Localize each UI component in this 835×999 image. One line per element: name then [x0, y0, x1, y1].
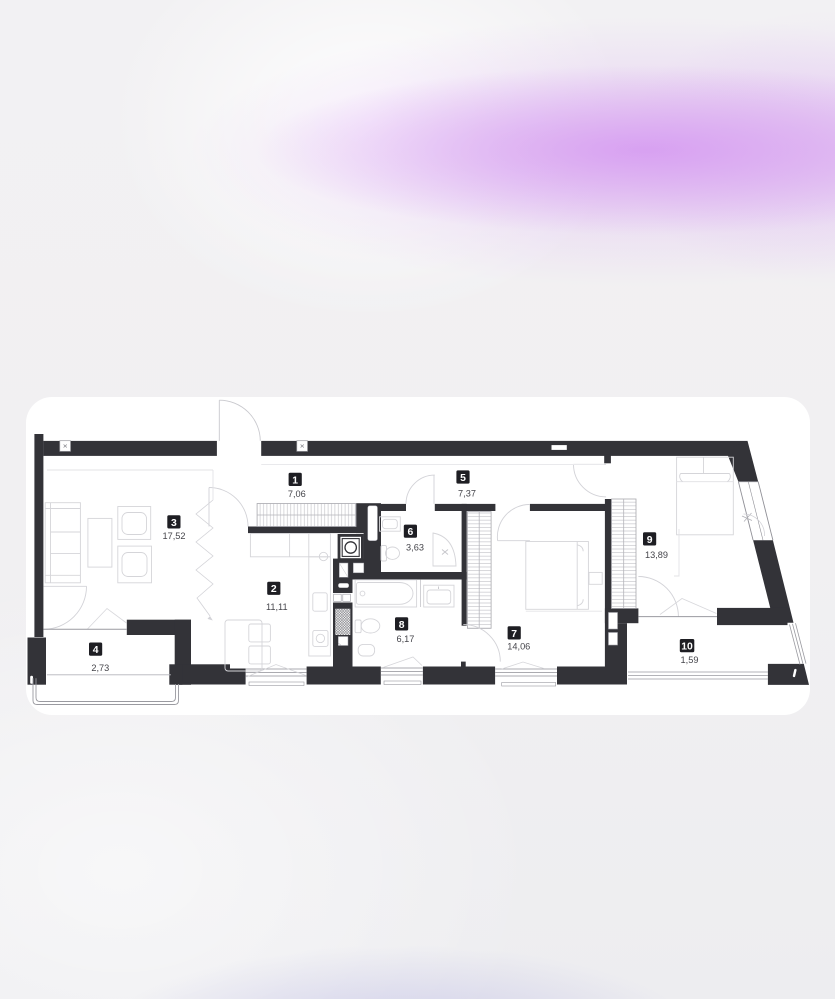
svg-text:6,17: 6,17	[396, 634, 414, 644]
svg-text:8: 8	[399, 620, 405, 631]
svg-text:1,59: 1,59	[681, 655, 699, 665]
svg-text:10: 10	[681, 642, 693, 653]
svg-text:14,06: 14,06	[507, 642, 530, 652]
svg-text:3: 3	[171, 518, 177, 529]
svg-text:7: 7	[511, 629, 517, 640]
svg-text:2: 2	[271, 584, 277, 595]
svg-text:17,52: 17,52	[163, 531, 186, 541]
svg-text:6: 6	[408, 527, 414, 538]
svg-text:1: 1	[292, 475, 298, 486]
svg-text:9: 9	[647, 535, 653, 546]
svg-text:11,11: 11,11	[266, 602, 288, 612]
svg-text:13,89: 13,89	[645, 550, 668, 560]
svg-text:7,06: 7,06	[288, 489, 306, 499]
svg-text:4: 4	[93, 645, 99, 656]
svg-text:7,37: 7,37	[458, 489, 476, 499]
svg-text:2,73: 2,73	[91, 663, 109, 673]
svg-text:3,63: 3,63	[406, 543, 424, 553]
svg-text:5: 5	[460, 473, 466, 484]
